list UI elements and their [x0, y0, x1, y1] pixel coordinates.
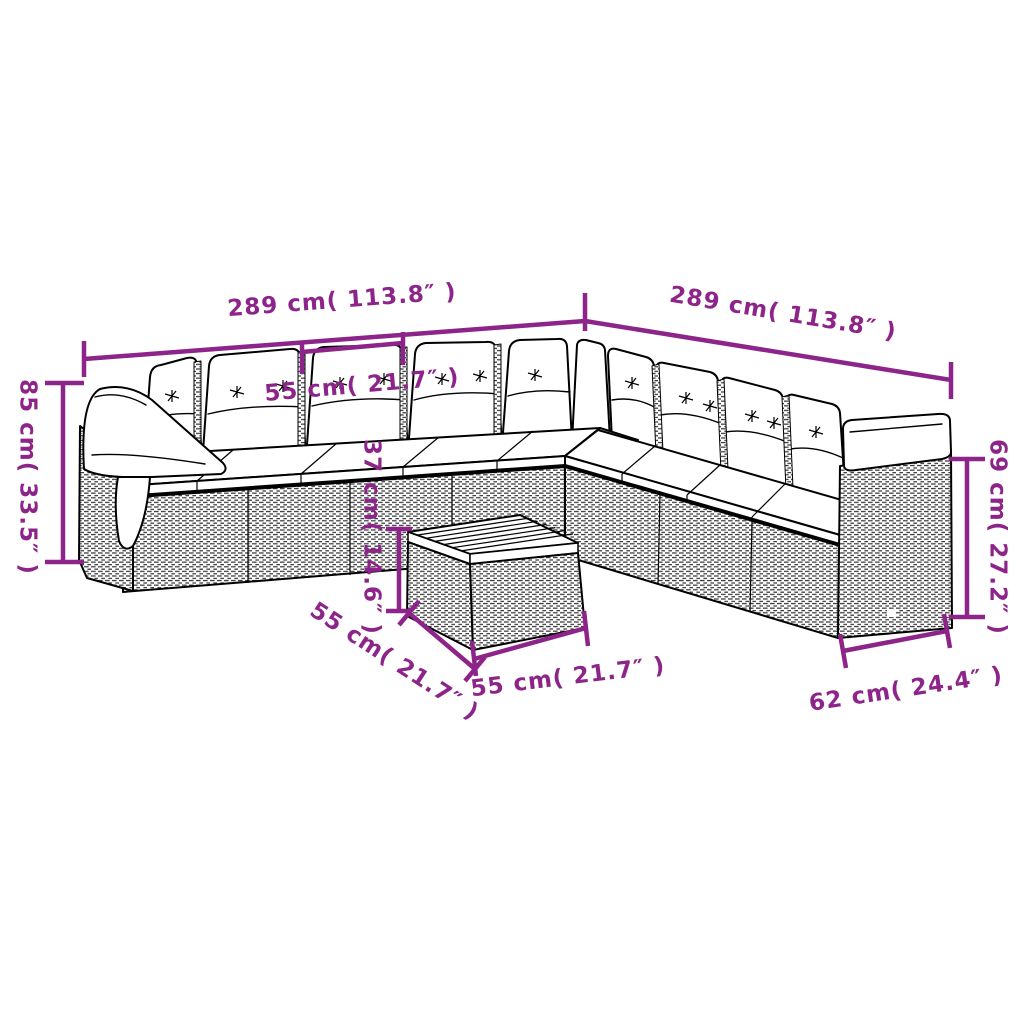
- coffee-table: [407, 515, 585, 650]
- post: [494, 344, 501, 437]
- dim-label-seat-module-depth: 62 cm( 24.4″ ): [807, 662, 1004, 717]
- dim-sofa-height-left: 85 cm( 33.5″ ): [15, 379, 85, 575]
- dim-label-sofa-height-right: 69 cm( 27.2″ ): [985, 439, 1011, 635]
- dim-label-table-width: 55 cm( 21.7″ ): [469, 653, 666, 703]
- diagram-canvas: 289 cm( 113.8″ ) 289 cm( 113.8″ ) 55 cm(…: [0, 0, 1024, 1024]
- dimension-line: [949, 459, 985, 617]
- dim-sofa-height-right: 69 cm( 27.2″ ): [949, 439, 1011, 635]
- dim-label-table-height: 37 cm( 14.6″ ): [359, 439, 385, 635]
- product-dimension-diagram: 289 cm( 113.8″ ) 289 cm( 113.8″ ) 55 cm(…: [0, 0, 1024, 1024]
- dimension-line: [45, 383, 84, 562]
- dim-label-sofa-height-left: 85 cm( 33.5″ ): [15, 379, 41, 575]
- dim-label-sofa-width-right: 289 cm( 113.8″ ): [668, 282, 899, 346]
- right-arm-panel: [838, 451, 952, 638]
- arm-logo-plate: [887, 610, 896, 617]
- corner-back-cushion: [572, 340, 610, 442]
- corner-sofa: [79, 339, 952, 650]
- table-body-right: [470, 553, 585, 650]
- dim-label-sofa-width-left: 289 cm( 113.8″ ): [226, 279, 457, 322]
